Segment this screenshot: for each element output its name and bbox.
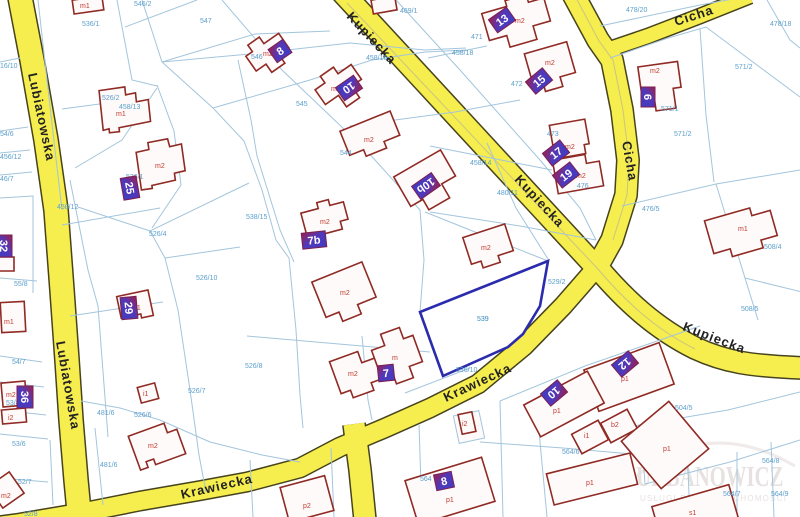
svg-text:538/15: 538/15 [246, 214, 268, 221]
svg-text:52/7: 52/7 [18, 479, 32, 486]
svg-text:478/18: 478/18 [770, 21, 792, 28]
svg-text:m2: m2 [320, 219, 330, 226]
svg-text:472: 472 [511, 81, 523, 88]
svg-text:7: 7 [382, 368, 389, 381]
svg-text:i2: i2 [462, 421, 468, 428]
svg-text:526/7: 526/7 [188, 388, 206, 395]
svg-text:m1: m1 [738, 226, 748, 233]
svg-text:564/6: 564/6 [562, 449, 580, 456]
svg-text:544: 544 [340, 150, 352, 157]
svg-text:p1: p1 [446, 497, 454, 504]
svg-text:481/6: 481/6 [100, 462, 118, 469]
svg-text:36: 36 [18, 391, 30, 403]
svg-text:16/10: 16/10 [0, 63, 18, 70]
svg-text:526/10: 526/10 [196, 275, 218, 282]
svg-text:571/2: 571/2 [735, 64, 753, 71]
svg-text:536/10: 536/10 [456, 367, 478, 374]
svg-text:7b: 7b [307, 234, 321, 247]
svg-text:i1: i1 [143, 391, 149, 398]
svg-text:b2: b2 [611, 422, 619, 429]
svg-text:564/9: 564/9 [771, 491, 789, 498]
svg-text:458/18: 458/18 [452, 50, 474, 57]
svg-text:458/13: 458/13 [119, 104, 141, 111]
svg-text:53/6: 53/6 [12, 441, 26, 448]
svg-text:52/8: 52/8 [24, 511, 38, 517]
svg-text:29: 29 [121, 301, 134, 314]
svg-text:6: 6 [641, 94, 653, 100]
svg-text:m1: m1 [80, 3, 90, 10]
svg-text:p1: p1 [663, 446, 671, 453]
svg-text:471: 471 [471, 34, 483, 41]
svg-text:571/2: 571/2 [674, 131, 692, 138]
svg-text:m1: m1 [116, 111, 126, 118]
svg-text:508/5: 508/5 [741, 306, 759, 313]
svg-text:478/20: 478/20 [626, 7, 648, 14]
svg-text:476/5: 476/5 [642, 206, 660, 213]
svg-text:546/2: 546/2 [134, 1, 152, 8]
svg-text:54/7: 54/7 [12, 359, 26, 366]
svg-text:p1: p1 [553, 408, 561, 415]
svg-text:546: 546 [251, 54, 263, 61]
svg-text:s1: s1 [689, 510, 697, 517]
svg-text:504/5: 504/5 [675, 405, 693, 412]
svg-text:458/14: 458/14 [470, 160, 492, 167]
svg-text:571/1: 571/1 [661, 106, 679, 113]
svg-text:539: 539 [477, 316, 489, 323]
svg-text:m2: m2 [148, 443, 158, 450]
svg-text:529/2: 529/2 [548, 279, 566, 286]
svg-text:m2: m2 [515, 18, 525, 25]
svg-text:m2: m2 [650, 68, 660, 75]
svg-text:564: 564 [420, 476, 432, 483]
svg-text:456/12: 456/12 [0, 154, 22, 161]
svg-text:526/8: 526/8 [245, 363, 263, 370]
svg-text:55/8: 55/8 [14, 281, 28, 288]
svg-text:32: 32 [0, 240, 9, 252]
svg-text:m2: m2 [545, 60, 555, 67]
svg-text:25: 25 [122, 181, 136, 195]
svg-text:m2: m2 [481, 245, 491, 252]
svg-text:p2: p2 [303, 503, 311, 510]
svg-text:i1: i1 [584, 433, 590, 440]
svg-text:p1: p1 [586, 480, 594, 487]
svg-text:564/8: 564/8 [762, 458, 780, 465]
svg-text:547: 547 [200, 18, 212, 25]
svg-text:54/6: 54/6 [0, 131, 14, 138]
svg-text:564/7: 564/7 [723, 491, 741, 498]
svg-text:m2: m2 [1, 493, 11, 500]
svg-text:536/1: 536/1 [82, 21, 100, 28]
svg-text:458/16: 458/16 [366, 55, 388, 62]
svg-text:m1: m1 [4, 319, 14, 326]
svg-text:476: 476 [577, 183, 589, 190]
svg-text:526/4: 526/4 [149, 231, 167, 238]
svg-text:m2: m2 [155, 163, 165, 170]
svg-text:526/2: 526/2 [102, 95, 120, 102]
svg-text:m2: m2 [6, 392, 16, 399]
svg-text:458/12: 458/12 [57, 204, 79, 211]
svg-text:481/6: 481/6 [97, 410, 115, 417]
svg-text:i2: i2 [8, 415, 14, 422]
svg-text:480/11: 480/11 [497, 190, 518, 197]
svg-text:469/1: 469/1 [400, 8, 418, 15]
svg-text:473: 473 [547, 131, 559, 138]
svg-text:545: 545 [296, 101, 308, 108]
svg-text:m2: m2 [364, 137, 374, 144]
svg-text:m2: m2 [340, 290, 350, 297]
svg-text:m: m [392, 355, 398, 362]
svg-text:526/6: 526/6 [134, 412, 152, 419]
svg-text:46/7: 46/7 [0, 176, 14, 183]
svg-text:508/4: 508/4 [764, 244, 782, 251]
svg-text:m2: m2 [348, 371, 358, 378]
